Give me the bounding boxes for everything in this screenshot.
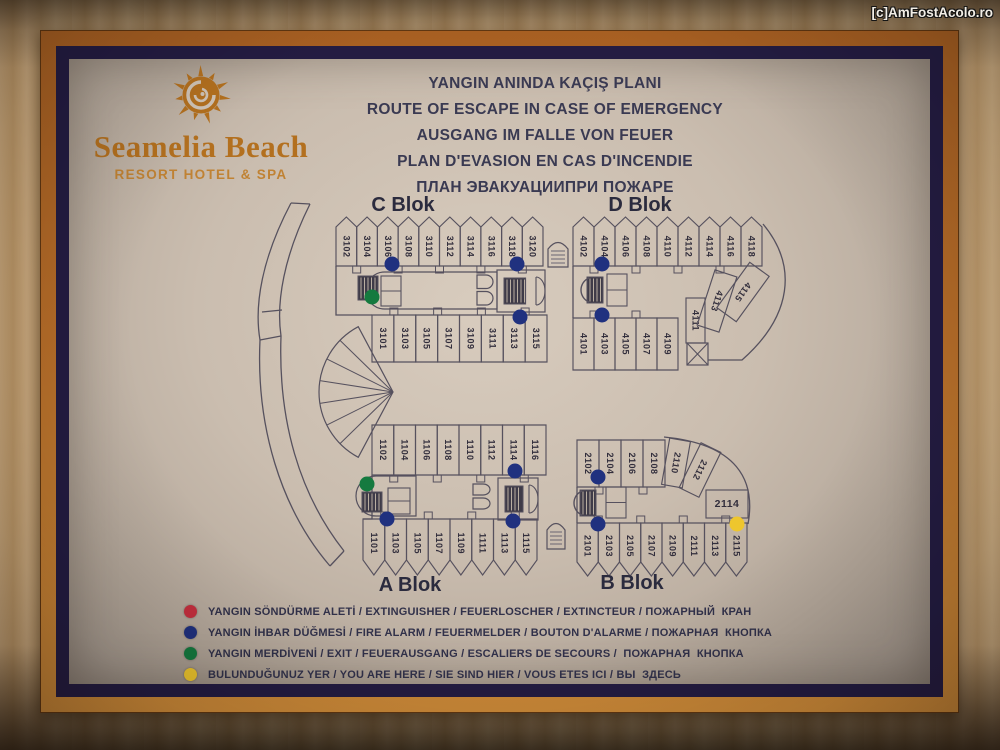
- room-number: 2110: [669, 452, 683, 475]
- room-group: 4113: [697, 270, 737, 332]
- room-number: 3111: [487, 328, 497, 349]
- door-notch: [433, 475, 441, 482]
- room-number: 2104: [605, 452, 615, 474]
- room-number: 4108: [642, 235, 652, 257]
- elevator-icon: [473, 484, 490, 495]
- room-number: 2106: [627, 452, 637, 474]
- room-number: 2115: [731, 535, 741, 557]
- room-number: 2101: [583, 535, 593, 557]
- room-number: 1109: [456, 532, 466, 554]
- room-number: 1110: [465, 439, 475, 460]
- room-number: 4106: [621, 235, 631, 257]
- room-number: 3112: [445, 236, 455, 258]
- building-outline: [330, 551, 344, 566]
- door-notch: [353, 266, 361, 273]
- room-number: 3104: [362, 235, 372, 257]
- room-number: 4109: [663, 333, 673, 355]
- room-number: 3107: [444, 327, 454, 349]
- block-label: C Blok: [371, 194, 435, 216]
- elevator-icon: [536, 277, 545, 305]
- room-number: 1113: [499, 533, 509, 554]
- room-number: 3106: [383, 235, 393, 257]
- elevator-icon: [477, 275, 493, 289]
- door-notch: [674, 266, 682, 273]
- room-number: 3108: [403, 235, 413, 257]
- room-number: 2108: [649, 452, 659, 474]
- room-number: 1101: [369, 532, 379, 554]
- room-number: 3115: [531, 328, 541, 350]
- room-number: 3109: [465, 327, 475, 349]
- room-number: 4104: [600, 235, 610, 257]
- room-number: 2109: [668, 535, 678, 557]
- room-number: 1107: [434, 532, 444, 554]
- door-notch: [424, 512, 432, 519]
- room-number: 4116: [726, 236, 736, 258]
- room-number: 1114: [508, 439, 518, 460]
- door-notch: [632, 266, 640, 273]
- room-number: 3102: [341, 235, 351, 257]
- door-notch: [637, 516, 645, 523]
- room-number: 4110: [663, 236, 673, 258]
- room-number: 3103: [400, 327, 410, 349]
- elevator-icon: [473, 498, 490, 509]
- watermark: [c]AmFostAcolo.ro: [872, 5, 994, 20]
- room-number: 3116: [486, 236, 496, 258]
- room-number: 3110: [424, 236, 434, 258]
- door-notch: [722, 516, 730, 523]
- room-group: 4111: [686, 298, 705, 343]
- blue-marker-dot: [508, 464, 523, 479]
- room-number: 4112: [684, 236, 694, 258]
- room-number: 3118: [507, 236, 517, 258]
- elevator-icon: [477, 292, 493, 306]
- block-label: B Blok: [600, 572, 664, 594]
- room-group: 2110: [662, 438, 691, 488]
- room-number: 4103: [600, 333, 610, 355]
- room-number: 3120: [528, 235, 538, 257]
- block-label: D Blok: [608, 194, 672, 216]
- door-notch: [679, 516, 687, 523]
- room-number: 1105: [412, 532, 422, 554]
- green-marker-dot: [360, 477, 375, 492]
- blue-marker-dot: [506, 514, 521, 529]
- room-number: 1116: [530, 439, 540, 460]
- room-number: 4115: [733, 280, 754, 303]
- room-number: 4107: [642, 333, 652, 355]
- room-number: 2111: [689, 535, 699, 556]
- blue-marker-dot: [513, 310, 528, 325]
- room-number: 1102: [378, 439, 388, 461]
- blue-marker-dot: [591, 517, 606, 532]
- blue-marker-dot: [385, 257, 400, 272]
- room-number: 1111: [478, 533, 488, 554]
- room-number: 1103: [391, 532, 401, 554]
- block-label: A Blok: [379, 574, 442, 596]
- door-notch: [477, 475, 485, 482]
- green-marker-dot: [365, 290, 380, 305]
- room-number: 1115: [521, 533, 531, 554]
- room-number: 1112: [487, 439, 497, 460]
- door-notch: [632, 311, 640, 318]
- blue-marker-dot: [510, 257, 525, 272]
- room-number: 4114: [705, 236, 715, 258]
- room-number: 1108: [443, 439, 453, 461]
- blue-marker-dot: [380, 512, 395, 527]
- room-number: 2114: [715, 498, 740, 510]
- building-outline: [291, 203, 310, 204]
- room-number: 3105: [422, 327, 432, 349]
- room-number: 2102: [583, 452, 593, 474]
- floor-plan: 3102310431063108311031123114311631183120…: [0, 0, 1000, 750]
- room-number: 1104: [400, 439, 410, 461]
- room-number: 2113: [710, 535, 720, 557]
- blue-marker-dot: [595, 257, 610, 272]
- room-number: 3113: [509, 328, 519, 350]
- room-number: 2112: [691, 458, 709, 482]
- room-number: 3114: [466, 236, 476, 258]
- room-number: 4105: [621, 333, 631, 355]
- blue-marker-dot: [591, 470, 606, 485]
- plan-line: [340, 392, 393, 444]
- room-group: 2114: [706, 490, 748, 518]
- door-notch: [468, 512, 476, 519]
- door-notch: [639, 487, 647, 494]
- room-number: 3101: [378, 327, 388, 349]
- room-number: 4113: [709, 289, 725, 313]
- blue-marker-dot: [595, 308, 610, 323]
- room-number: 2107: [646, 535, 656, 557]
- room-number: 2103: [604, 535, 614, 557]
- building-outline: [260, 336, 281, 340]
- yellow-marker-dot: [730, 517, 745, 532]
- room-number: 4101: [579, 333, 589, 355]
- building-outline: [280, 204, 344, 551]
- room-number: 4102: [579, 235, 589, 257]
- photo-background: Seamelia Beach RESORT HOTEL & SPA YANGIN…: [0, 0, 1000, 750]
- room-number: 2105: [625, 535, 635, 557]
- elevator-icon: [529, 485, 538, 513]
- room-number: 4118: [747, 236, 757, 258]
- room-number: 1106: [421, 439, 431, 461]
